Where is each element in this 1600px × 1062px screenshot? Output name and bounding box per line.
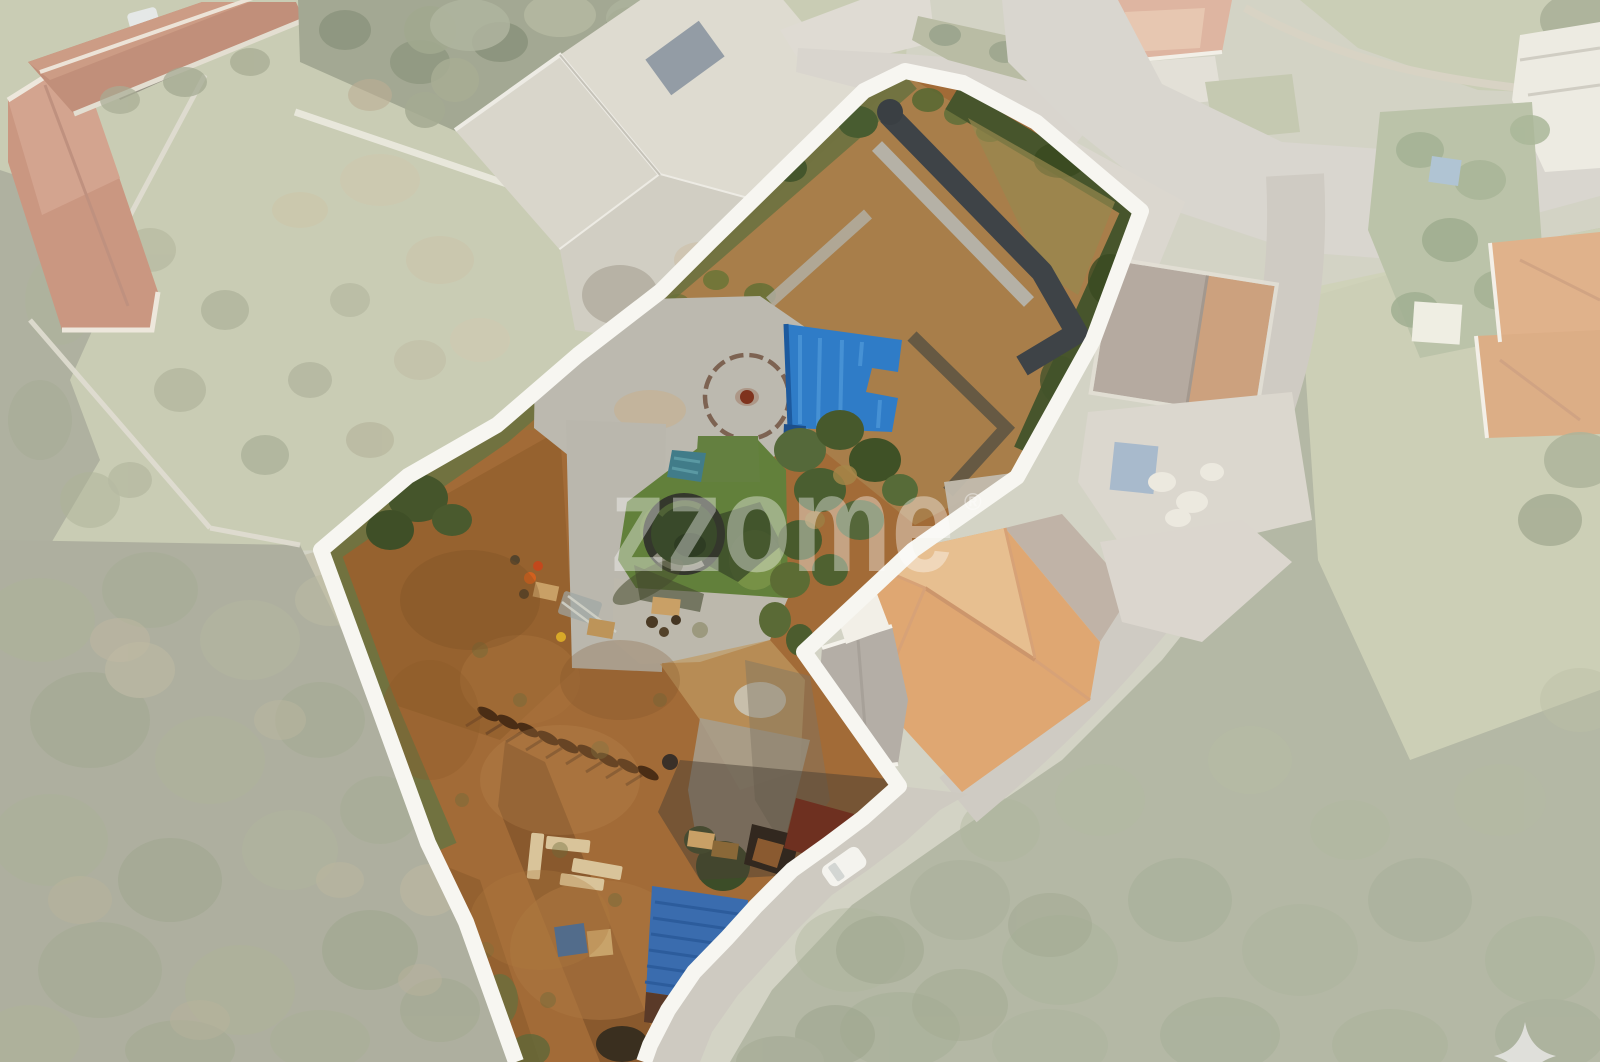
svg-text:®: ® xyxy=(964,489,982,516)
svg-text:zzome: zzome xyxy=(610,446,954,601)
